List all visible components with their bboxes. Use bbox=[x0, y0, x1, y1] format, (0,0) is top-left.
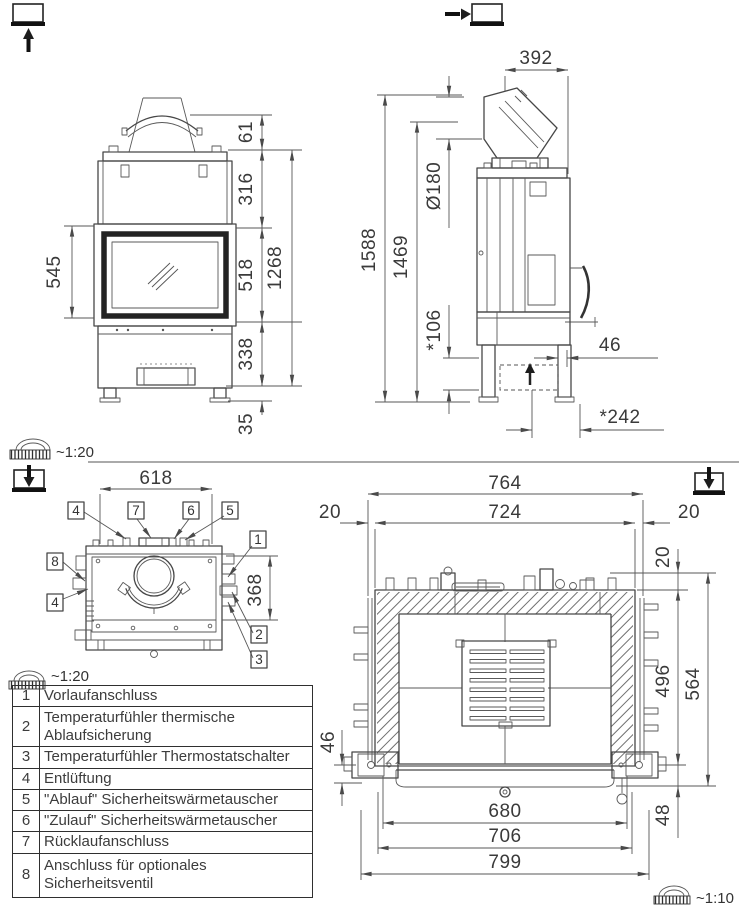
legend-num: 2 bbox=[13, 707, 40, 747]
legend-row: 2 Temperaturfühler thermische Ablaufsich… bbox=[13, 707, 313, 747]
plan-view-direction-icon bbox=[12, 465, 46, 490]
callout-5: 5 bbox=[226, 503, 234, 518]
legend-label: Vorlaufanschluss bbox=[40, 686, 313, 707]
legend-row: 7 Rücklaufanschluss bbox=[13, 832, 313, 853]
side-view-direction-icon bbox=[445, 4, 504, 24]
scale-icon-section bbox=[654, 886, 690, 904]
dim-section-base-width: 799 bbox=[488, 852, 521, 873]
dim-side-flue-diameter: Ø180 bbox=[424, 162, 445, 210]
dim-front-foot-height: 35 bbox=[236, 413, 257, 435]
dim-side-flue-depth: 392 bbox=[519, 48, 552, 69]
legend-row: 5 "Ablauf" Sicherheitswärmetauscher bbox=[13, 789, 313, 810]
legend-num: 4 bbox=[13, 768, 40, 789]
legend-num: 6 bbox=[13, 811, 40, 832]
dim-plan-width: 618 bbox=[139, 468, 172, 489]
callout-7: 7 bbox=[132, 503, 140, 518]
plan-view-callouts: 4 7 6 5 1 8 4 2 3 bbox=[47, 502, 267, 668]
dim-section-overall-width: 764 bbox=[488, 473, 521, 494]
legend-label: Anschluss für optionales Sicherheitsvent… bbox=[40, 853, 313, 897]
callout-2: 2 bbox=[255, 627, 263, 642]
legend-num: 1 bbox=[13, 686, 40, 707]
dim-section-front-height: 48 bbox=[653, 804, 674, 826]
section-view-direction-icon bbox=[693, 467, 725, 493]
dim-side-base-height: *106 bbox=[424, 309, 445, 350]
dim-front-upper-height: 316 bbox=[236, 172, 257, 205]
dim-side-total-height: 1588 bbox=[359, 228, 380, 272]
dim-section-inner-depth: 496 bbox=[653, 664, 674, 697]
legend-row: 8 Anschluss für optionales Sicherheitsve… bbox=[13, 853, 313, 897]
side-view-drawing bbox=[477, 88, 598, 402]
dim-front-flue-height: 61 bbox=[236, 121, 257, 143]
dim-section-gap-left: 20 bbox=[319, 502, 341, 523]
front-view-direction-icon bbox=[11, 4, 45, 52]
scale-label-upper: ~1:20 bbox=[56, 444, 94, 461]
legend-row: 4 Entlüftung bbox=[13, 768, 313, 789]
dim-side-rear-gap: 46 bbox=[599, 335, 621, 356]
dim-front-door-height: 518 bbox=[236, 258, 257, 291]
dim-front-total-height: 1268 bbox=[265, 246, 286, 290]
scale-icon-upper bbox=[10, 439, 50, 459]
callout-8: 8 bbox=[51, 554, 59, 569]
scale-label-plan: ~1:20 bbox=[51, 668, 89, 685]
dim-front-lower-height: 338 bbox=[236, 337, 257, 370]
callout-1: 1 bbox=[254, 532, 262, 547]
legend-row: 6 "Zulauf" Sicherheitswärmetauscher bbox=[13, 811, 313, 832]
legend-label: "Ablauf" Sicherheitswärmetauscher bbox=[40, 789, 313, 810]
legend-label: Temperaturfühler thermische Ablaufsicher… bbox=[40, 707, 313, 747]
dim-section-gap-right: 20 bbox=[678, 502, 700, 523]
legend-row: 1 Vorlaufanschluss bbox=[13, 686, 313, 707]
front-view-dimensions: 545 61 316 518 338 35 1268 bbox=[44, 115, 302, 435]
callout-4b: 4 bbox=[51, 595, 59, 610]
callout-3: 3 bbox=[255, 652, 263, 667]
scale-label-section: ~1:10 bbox=[696, 890, 734, 907]
dim-section-outer-depth: 564 bbox=[683, 667, 704, 700]
dim-side-rear-depth: *242 bbox=[599, 407, 640, 428]
plan-view-drawing bbox=[73, 538, 237, 658]
dim-section-gap-top: 20 bbox=[653, 546, 674, 568]
legend-num: 5 bbox=[13, 789, 40, 810]
side-view-dimensions: 392 Ø180 1588 1469 *106 46 *242 bbox=[359, 48, 664, 438]
callout-4a: 4 bbox=[72, 503, 80, 518]
dim-section-inner-width: 724 bbox=[488, 502, 521, 523]
legend-num: 8 bbox=[13, 853, 40, 897]
callout-6: 6 bbox=[187, 503, 195, 518]
dim-section-hinge-height: 46 bbox=[318, 731, 339, 753]
legend-num: 7 bbox=[13, 832, 40, 853]
front-view-drawing bbox=[94, 98, 236, 402]
section-view-drawing bbox=[344, 567, 666, 804]
legend-label: Temperaturfühler Thermostatschalter bbox=[40, 747, 313, 768]
dim-front-glass-height: 545 bbox=[44, 255, 65, 288]
legend-num: 3 bbox=[13, 747, 40, 768]
legend-label: Rücklaufanschluss bbox=[40, 832, 313, 853]
legend-row: 3 Temperaturfühler Thermostatschalter bbox=[13, 747, 313, 768]
legend-label: "Zulauf" Sicherheitswärmetauscher bbox=[40, 811, 313, 832]
dim-section-door-width: 680 bbox=[488, 801, 521, 822]
legend-label: Entlüftung bbox=[40, 768, 313, 789]
technical-drawing-sheet: ~1:20 ~1:20 ~1:10 bbox=[0, 0, 739, 908]
dim-section-frame-width: 706 bbox=[488, 826, 521, 847]
dim-plan-depth: 368 bbox=[245, 573, 266, 606]
legend-table: 1 Vorlaufanschluss 2 Temperaturfühler th… bbox=[12, 685, 313, 898]
dim-side-outlet-height: 1469 bbox=[391, 235, 412, 279]
